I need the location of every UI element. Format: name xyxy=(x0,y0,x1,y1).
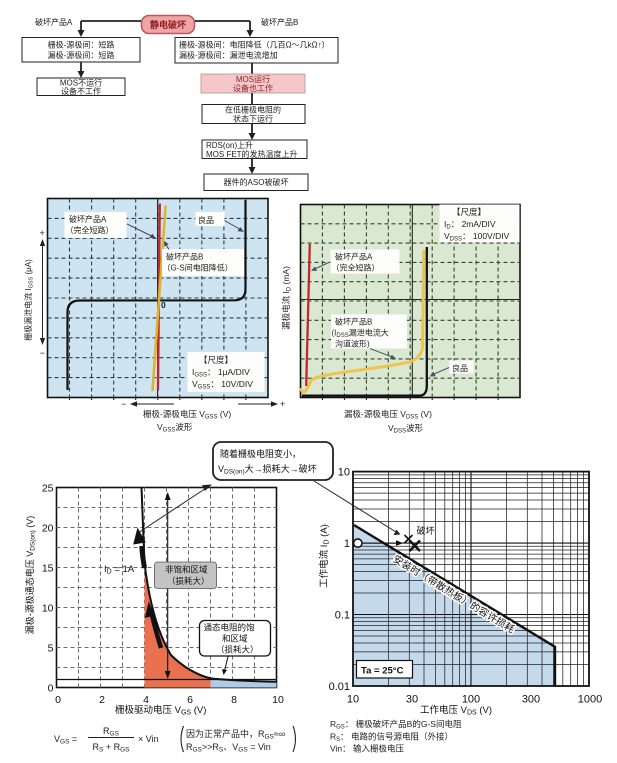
svg-text:1: 1 xyxy=(344,538,350,550)
svg-text:栅极-源极电压 VGSS (V): 栅极-源极电压 VGSS (V) xyxy=(143,409,231,421)
svg-text:RS： 电路的信号源电阻（外接）: RS： 电路的信号源电阻（外接） xyxy=(330,732,453,744)
svg-text:（G-S间电阻降低）: （G-S间电阻降低） xyxy=(163,263,233,273)
svg-text:8: 8 xyxy=(231,694,237,706)
svg-text:2: 2 xyxy=(99,694,105,706)
svg-text:ID： 2mA/DIV: ID： 2mA/DIV xyxy=(444,219,496,231)
svg-text:通态电阻的饱: 通态电阻的饱 xyxy=(204,623,256,633)
svg-text:漏极电流 ID (mA): 漏极电流 ID (mA) xyxy=(281,266,293,330)
svg-text:VDSS波形: VDSS波形 xyxy=(388,423,424,435)
svg-text:沟道波形): 沟道波形) xyxy=(335,339,370,349)
svg-text:设备不工作: 设备不工作 xyxy=(61,86,101,96)
svg-text:破坏产品B: 破坏产品B xyxy=(166,252,203,262)
svg-text:漏极-源极间：短路: 漏极-源极间：短路 xyxy=(48,50,115,60)
svg-text:设备也工作: 设备也工作 xyxy=(233,83,273,93)
svg-text:漏极-源极间：漏泄电流增加: 漏极-源极间：漏泄电流增加 xyxy=(179,50,278,60)
svg-text:Vin： 输入栅极电压: Vin： 输入栅极电压 xyxy=(330,744,404,754)
svg-text:20: 20 xyxy=(42,522,54,534)
svg-text:（损耗大）: （损耗大） xyxy=(216,645,259,655)
svg-text:状态下运行: 状态下运行 xyxy=(233,114,273,124)
svg-text:在低栅极电阻的: 在低栅极电阻的 xyxy=(225,105,281,115)
svg-text:破坏: 破坏 xyxy=(417,525,435,536)
svg-text:10: 10 xyxy=(42,602,54,614)
svg-text:+: + xyxy=(280,399,285,409)
svg-text:MOS不运行: MOS不运行 xyxy=(60,78,102,88)
svg-text:栅极-源极间：短路: 栅极-源极间：短路 xyxy=(48,40,115,50)
svg-text:−: − xyxy=(121,399,126,409)
svg-text:器件的ASO被破坏: 器件的ASO被破坏 xyxy=(224,177,289,187)
svg-text:0: 0 xyxy=(48,682,54,694)
svg-text:非饱和区域: 非饱和区域 xyxy=(165,565,208,575)
svg-text:15: 15 xyxy=(42,562,54,574)
svg-text:VGSS波形: VGSS波形 xyxy=(157,422,193,434)
svg-text:300: 300 xyxy=(522,694,540,706)
svg-text:RDS(on)上升: RDS(on)上升 xyxy=(206,141,253,150)
svg-text:0.1: 0.1 xyxy=(335,610,350,622)
svg-text:随着栅极电阻变小，: 随着栅极电阻变小， xyxy=(220,448,301,459)
svg-text:1000: 1000 xyxy=(578,694,602,706)
svg-text:（完全短路）: （完全短路） xyxy=(332,263,380,273)
svg-text:和区域: 和区域 xyxy=(222,634,248,644)
svg-text:MOS FET的发热温度上升: MOS FET的发热温度上升 xyxy=(206,149,298,159)
svg-text:（损耗大）: （损耗大） xyxy=(167,576,210,586)
svg-text:栅极-源极间：电阻降低（几百Ω～几kΩ↑）: 栅极-源极间：电阻降低（几百Ω～几kΩ↑） xyxy=(179,40,330,50)
svg-text:【尺度】: 【尺度】 xyxy=(199,355,233,365)
svg-text:良品: 良品 xyxy=(198,215,214,225)
svg-text:工作电流 ID (A): 工作电流 ID (A) xyxy=(318,524,331,588)
svg-text:0.01: 0.01 xyxy=(329,681,350,693)
svg-text:100: 100 xyxy=(462,694,480,706)
svg-text:25: 25 xyxy=(42,482,54,494)
svg-text:10: 10 xyxy=(347,694,359,706)
svg-text:0: 0 xyxy=(161,300,166,310)
svg-text:【尺度】: 【尺度】 xyxy=(452,207,486,217)
svg-text:5: 5 xyxy=(48,642,54,654)
svg-text:破坏产品B: 破坏产品B xyxy=(261,17,298,27)
svg-text:破坏产品A: 破坏产品A xyxy=(69,214,107,224)
svg-text:Ta = 25°C: Ta = 25°C xyxy=(361,666,404,677)
svg-text:漏极-源极电压 VDSS (V): 漏极-源极电压 VDSS (V) xyxy=(344,409,432,421)
svg-text:栅极漏泄电流 IGSS (μA): 栅极漏泄电流 IGSS (μA) xyxy=(23,259,35,341)
svg-text:+: + xyxy=(40,228,45,238)
svg-text:栅极驱动电压 VGS (V): 栅极驱动电压 VGS (V) xyxy=(115,704,206,717)
svg-text:−: − xyxy=(40,348,45,358)
svg-text:良品: 良品 xyxy=(452,363,468,373)
svg-text:静电破坏: 静电破坏 xyxy=(150,19,186,30)
svg-text:破坏产品A: 破坏产品A xyxy=(35,17,73,27)
svg-text:30: 30 xyxy=(406,694,418,706)
svg-text:破坏产品A: 破坏产品A xyxy=(335,252,373,262)
svg-text:0: 0 xyxy=(55,694,61,706)
svg-text:10: 10 xyxy=(338,467,350,479)
svg-text:工作电压 VDS (V): 工作电压 VDS (V) xyxy=(420,704,492,717)
svg-text:× Vin: × Vin xyxy=(138,734,159,744)
svg-text:MOS运行: MOS运行 xyxy=(236,74,270,84)
svg-text:（完全短路）: （完全短路） xyxy=(66,225,114,235)
svg-text:RGS： 栅极破坏产品B的G-S间电阻: RGS： 栅极破坏产品B的G-S间电阻 xyxy=(330,719,462,731)
svg-text:10: 10 xyxy=(272,694,284,706)
svg-text:破坏产品B: 破坏产品B xyxy=(335,317,372,327)
